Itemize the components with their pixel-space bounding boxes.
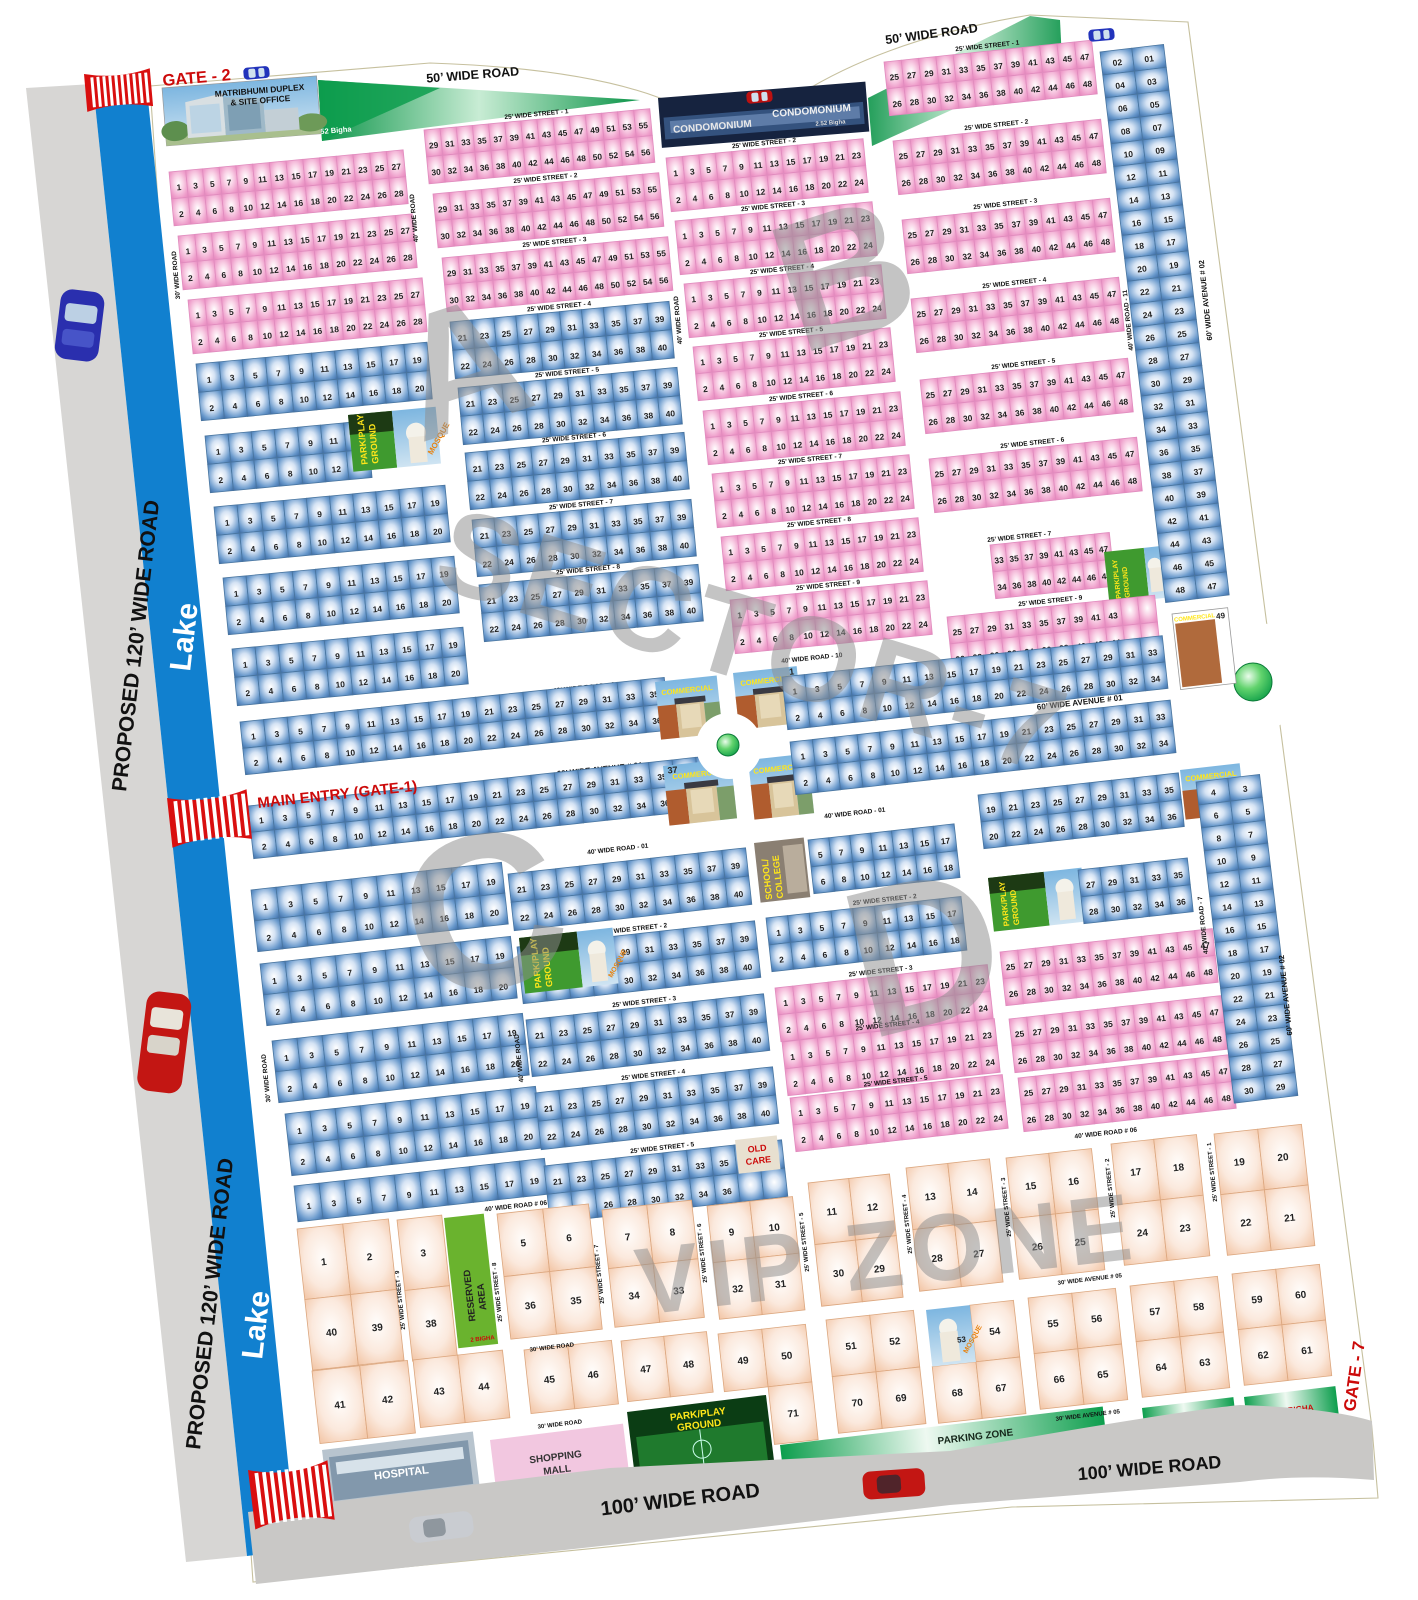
svg-text:42: 42 (1167, 516, 1178, 527)
svg-text:33: 33 (659, 868, 670, 879)
svg-text:24: 24 (1033, 826, 1044, 837)
svg-text:30: 30 (1244, 1085, 1255, 1096)
svg-text:52: 52 (889, 1336, 902, 1348)
svg-text:13: 13 (361, 504, 372, 515)
svg-text:29: 29 (942, 226, 953, 237)
svg-text:35: 35 (1009, 553, 1020, 564)
svg-text:32: 32 (578, 416, 589, 427)
svg-text:35: 35 (626, 449, 637, 460)
svg-text:36: 36 (979, 89, 990, 100)
svg-text:34: 34 (592, 348, 603, 359)
svg-text:30: 30 (556, 418, 567, 429)
svg-text:37: 37 (1121, 1017, 1132, 1028)
svg-text:41: 41 (525, 131, 536, 142)
svg-text:33: 33 (461, 137, 472, 148)
svg-text:28: 28 (565, 808, 576, 819)
svg-text:27: 27 (624, 1168, 635, 1179)
svg-text:45: 45 (543, 1374, 556, 1386)
svg-text:28: 28 (526, 355, 537, 366)
svg-text:40: 40 (1040, 323, 1051, 334)
svg-text:23: 23 (367, 228, 378, 239)
svg-text:11: 11 (329, 435, 339, 446)
svg-text:10: 10 (317, 537, 328, 548)
svg-text:37: 37 (655, 514, 666, 525)
svg-text:40: 40 (1058, 483, 1069, 494)
svg-text:32: 32 (674, 1191, 685, 1202)
svg-text:35: 35 (1164, 784, 1175, 795)
svg-text:46: 46 (1092, 317, 1103, 328)
svg-text:48: 48 (1175, 585, 1186, 596)
svg-text:48: 48 (576, 153, 587, 164)
svg-text:46: 46 (587, 1369, 600, 1381)
svg-text:31: 31 (1004, 621, 1015, 632)
svg-text:48: 48 (682, 1359, 695, 1371)
svg-text:31: 31 (950, 145, 961, 156)
svg-text:33: 33 (976, 222, 987, 233)
svg-text:37: 37 (1002, 140, 1013, 151)
svg-text:39: 39 (371, 1322, 384, 1334)
svg-text:14: 14 (1128, 195, 1139, 206)
svg-text:29: 29 (648, 1165, 659, 1176)
svg-text:28: 28 (1148, 355, 1159, 366)
svg-text:16: 16 (1224, 925, 1235, 936)
svg-text:34: 34 (997, 409, 1008, 420)
svg-text:41: 41 (1156, 1013, 1167, 1024)
svg-text:28: 28 (557, 725, 568, 736)
svg-text:28: 28 (927, 255, 938, 266)
svg-text:32: 32 (647, 972, 658, 983)
svg-text:12: 12 (340, 535, 351, 546)
svg-text:37: 37 (1020, 298, 1031, 309)
svg-text:28: 28 (403, 252, 414, 263)
svg-text:25: 25 (582, 1025, 593, 1036)
svg-text:30: 30 (1110, 904, 1121, 915)
svg-text:30: 30 (1062, 1110, 1073, 1121)
svg-text:42: 42 (1048, 242, 1059, 253)
svg-text:18: 18 (440, 737, 451, 748)
svg-text:28: 28 (591, 904, 602, 915)
svg-text:37: 37 (667, 764, 678, 775)
svg-text:29: 29 (1059, 1084, 1070, 1095)
svg-text:51: 51 (615, 187, 626, 198)
svg-text:21: 21 (341, 166, 352, 177)
svg-text:39: 39 (1039, 550, 1050, 561)
svg-text:38: 38 (737, 1110, 748, 1121)
svg-text:23: 23 (508, 704, 519, 715)
svg-text:20: 20 (1137, 263, 1148, 274)
svg-text:25: 25 (600, 1171, 611, 1182)
svg-text:39: 39 (1028, 217, 1039, 228)
svg-text:37: 37 (633, 316, 644, 327)
svg-text:26: 26 (1145, 332, 1156, 343)
svg-text:44: 44 (1066, 240, 1077, 251)
svg-text:32: 32 (953, 172, 964, 183)
svg-text:16: 16 (460, 1064, 471, 1075)
svg-text:31: 31 (575, 388, 586, 399)
svg-text:17: 17 (504, 1178, 515, 1189)
svg-text:22: 22 (1240, 1217, 1253, 1229)
svg-text:17: 17 (839, 408, 850, 419)
svg-text:11: 11 (1251, 875, 1261, 886)
svg-text:43: 43 (1072, 292, 1083, 303)
svg-text:56: 56 (659, 275, 670, 286)
svg-text:33: 33 (967, 143, 978, 154)
svg-text:38: 38 (496, 161, 507, 172)
svg-text:24: 24 (369, 255, 380, 266)
svg-text:41: 41 (1055, 294, 1066, 305)
svg-text:20: 20 (858, 433, 869, 444)
svg-text:13: 13 (445, 1109, 456, 1120)
svg-text:38: 38 (1027, 578, 1038, 589)
svg-text:32: 32 (962, 251, 973, 262)
svg-text:52: 52 (626, 278, 637, 289)
svg-text:11: 11 (407, 1039, 417, 1050)
svg-text:56: 56 (641, 147, 652, 158)
svg-text:45: 45 (1071, 132, 1082, 143)
svg-text:45: 45 (557, 128, 568, 139)
svg-text:42: 42 (382, 1394, 395, 1406)
svg-text:32: 32 (944, 93, 955, 104)
svg-text:45: 45 (1098, 371, 1109, 382)
svg-text:34: 34 (698, 1189, 709, 1200)
svg-text:27: 27 (588, 876, 599, 887)
svg-text:15: 15 (832, 472, 843, 483)
svg-text:33: 33 (1076, 954, 1087, 965)
svg-text:16: 16 (922, 1121, 933, 1132)
svg-text:37: 37 (734, 1082, 745, 1093)
svg-text:43: 43 (1045, 55, 1056, 66)
svg-text:36: 36 (524, 1300, 537, 1312)
svg-text:28: 28 (541, 486, 552, 497)
svg-text:50: 50 (610, 279, 621, 290)
svg-text:32: 32 (447, 165, 458, 176)
svg-text:36: 36 (1106, 1045, 1117, 1056)
svg-text:29: 29 (1107, 877, 1118, 888)
svg-text:25: 25 (898, 151, 909, 162)
svg-text:48: 48 (1118, 396, 1129, 407)
svg-text:40: 40 (512, 159, 523, 170)
svg-text:21: 21 (350, 230, 361, 241)
svg-text:25: 25 (516, 459, 527, 470)
svg-text:15: 15 (786, 156, 797, 167)
svg-text:10: 10 (345, 747, 356, 758)
svg-text:16: 16 (368, 387, 379, 398)
svg-text:33: 33 (1151, 872, 1162, 883)
svg-text:34: 34 (1006, 488, 1017, 499)
svg-text:23: 23 (576, 1173, 587, 1184)
svg-text:46: 46 (1185, 969, 1196, 980)
svg-text:27: 27 (563, 782, 574, 793)
svg-text:37: 37 (1112, 950, 1123, 961)
svg-text:51: 51 (845, 1341, 858, 1353)
svg-text:40: 40 (521, 223, 532, 234)
svg-text:24: 24 (510, 730, 521, 741)
svg-text:60: 60 (1295, 1289, 1308, 1301)
svg-text:20: 20 (451, 668, 462, 679)
svg-text:36: 36 (479, 162, 490, 173)
svg-text:30: 30 (1114, 743, 1125, 754)
svg-text:33: 33 (985, 301, 996, 312)
svg-text:46: 46 (1172, 562, 1183, 573)
svg-text:53: 53 (631, 185, 642, 196)
svg-text:48: 48 (585, 217, 596, 228)
svg-text:33: 33 (1142, 787, 1153, 798)
svg-text:29: 29 (1041, 958, 1052, 969)
svg-text:11: 11 (429, 1187, 439, 1198)
svg-text:49: 49 (1216, 611, 1226, 621)
svg-text:44: 44 (1048, 82, 1059, 93)
svg-text:47: 47 (574, 126, 585, 137)
svg-text:31: 31 (1067, 1023, 1078, 1034)
svg-text:44: 44 (478, 1381, 491, 1393)
svg-text:33: 33 (1085, 1021, 1096, 1032)
svg-text:27: 27 (1273, 1058, 1284, 1069)
svg-text:18: 18 (860, 561, 871, 572)
svg-text:12: 12 (349, 606, 360, 617)
svg-text:31: 31 (582, 453, 593, 464)
svg-text:28: 28 (1083, 681, 1094, 692)
svg-text:55: 55 (647, 184, 658, 195)
svg-text:26: 26 (910, 256, 921, 267)
svg-text:64: 64 (1155, 1362, 1168, 1374)
svg-text:48: 48 (1203, 967, 1214, 978)
svg-text:36: 36 (722, 1186, 733, 1197)
svg-text:36: 36 (1024, 486, 1035, 497)
svg-text:31: 31 (662, 1090, 673, 1101)
svg-text:27: 27 (555, 699, 566, 710)
svg-text:35: 35 (1021, 459, 1032, 470)
svg-text:15: 15 (310, 299, 321, 310)
svg-text:26: 26 (937, 495, 948, 506)
svg-text:30: 30 (431, 167, 442, 178)
svg-text:34: 34 (988, 328, 999, 339)
svg-text:29: 29 (586, 779, 597, 790)
svg-text:15: 15 (470, 1106, 481, 1117)
svg-text:10: 10 (398, 1145, 409, 1156)
svg-text:46: 46 (1110, 477, 1121, 488)
svg-text:20: 20 (463, 735, 474, 746)
svg-text:35: 35 (710, 1085, 721, 1096)
svg-text:29: 29 (1050, 1025, 1061, 1036)
svg-text:20: 20 (867, 496, 878, 507)
svg-text:32: 32 (971, 330, 982, 341)
svg-text:20: 20 (327, 194, 338, 205)
svg-text:39: 39 (670, 445, 681, 456)
svg-text:21: 21 (835, 152, 846, 163)
svg-text:09: 09 (1155, 145, 1166, 156)
svg-text:33: 33 (633, 774, 644, 785)
svg-text:39: 39 (1019, 138, 1030, 149)
svg-text:12: 12 (887, 1124, 898, 1135)
svg-text:35: 35 (633, 516, 644, 527)
svg-text:22: 22 (1011, 829, 1022, 840)
svg-text:40: 40 (1042, 577, 1053, 588)
svg-text:12: 12 (389, 918, 400, 929)
svg-text:40: 40 (1150, 1101, 1161, 1112)
svg-text:44: 44 (1093, 479, 1104, 490)
svg-text:19: 19 (1168, 260, 1179, 271)
svg-text:24: 24 (985, 1057, 996, 1068)
svg-text:25: 25 (531, 701, 542, 712)
svg-text:42: 42 (528, 157, 539, 168)
svg-text:16: 16 (302, 262, 313, 273)
svg-text:39: 39 (1055, 456, 1066, 467)
svg-text:31: 31 (610, 776, 621, 787)
svg-text:28: 28 (1035, 1053, 1046, 1064)
svg-text:35: 35 (1094, 952, 1105, 963)
svg-text:41: 41 (1199, 512, 1210, 523)
svg-text:13: 13 (390, 716, 401, 727)
svg-text:39: 39 (739, 933, 750, 944)
svg-text:33: 33 (994, 555, 1005, 566)
svg-text:18: 18 (310, 196, 321, 207)
svg-text:23: 23 (1174, 305, 1185, 316)
svg-text:38: 38 (1133, 1103, 1144, 1114)
svg-text:43: 43 (1165, 944, 1176, 955)
svg-text:30: 30 (1106, 678, 1117, 689)
svg-text:52: 52 (608, 150, 619, 161)
svg-text:15: 15 (919, 1094, 930, 1105)
svg-text:36: 36 (1015, 407, 1026, 418)
svg-text:33: 33 (668, 941, 679, 952)
svg-text:38: 38 (635, 344, 646, 355)
svg-text:10: 10 (243, 202, 254, 213)
svg-text:41: 41 (543, 259, 554, 270)
svg-text:19: 19 (855, 406, 866, 417)
svg-text:53: 53 (957, 1335, 967, 1345)
svg-text:38: 38 (1005, 166, 1016, 177)
svg-text:10: 10 (1216, 856, 1227, 867)
svg-text:26: 26 (377, 190, 388, 201)
svg-text:28: 28 (954, 494, 965, 505)
svg-text:34: 34 (636, 800, 647, 811)
svg-text:50: 50 (601, 215, 612, 226)
svg-text:33: 33 (1094, 1080, 1105, 1091)
svg-text:12: 12 (1126, 172, 1137, 183)
svg-text:14: 14 (277, 199, 288, 210)
svg-text:30: 30 (954, 332, 965, 343)
svg-text:16: 16 (312, 326, 323, 337)
svg-text:43: 43 (1069, 547, 1080, 558)
svg-text:17: 17 (1259, 944, 1270, 955)
svg-text:36: 36 (613, 346, 624, 357)
svg-text:22: 22 (487, 732, 498, 743)
svg-text:22: 22 (883, 494, 894, 505)
svg-text:18: 18 (498, 1134, 509, 1145)
svg-text:25: 25 (889, 72, 900, 83)
svg-text:23: 23 (1030, 799, 1041, 810)
svg-text:45: 45 (1080, 211, 1091, 222)
svg-text:40: 40 (751, 1035, 762, 1046)
svg-text:33: 33 (604, 451, 615, 462)
svg-text:29: 29 (960, 386, 971, 397)
svg-text:35: 35 (1103, 1019, 1114, 1030)
svg-text:46: 46 (1203, 1095, 1214, 1106)
svg-text:47: 47 (1089, 131, 1100, 142)
svg-text:30: 30 (945, 253, 956, 264)
svg-text:39: 39 (730, 860, 741, 871)
svg-text:27: 27 (523, 326, 534, 337)
svg-text:19: 19 (955, 1090, 966, 1101)
svg-text:13: 13 (379, 646, 390, 657)
svg-text:27: 27 (615, 1095, 626, 1106)
svg-text:35: 35 (477, 135, 488, 146)
svg-text:41: 41 (1165, 1072, 1176, 1083)
svg-text:29: 29 (1097, 792, 1108, 803)
svg-text:28: 28 (918, 176, 929, 187)
svg-text:30: 30 (624, 975, 635, 986)
svg-text:32: 32 (570, 350, 581, 361)
svg-text:27: 27 (1032, 1026, 1043, 1037)
svg-text:13: 13 (454, 1184, 465, 1195)
svg-text:11: 11 (386, 888, 396, 899)
svg-text:24: 24 (909, 556, 920, 567)
svg-text:33: 33 (958, 64, 969, 75)
svg-text:22: 22 (363, 321, 374, 332)
svg-text:43: 43 (541, 129, 552, 140)
svg-text:63: 63 (1199, 1357, 1212, 1369)
svg-text:36: 36 (997, 247, 1008, 258)
svg-text:39: 39 (663, 380, 674, 391)
svg-text:26: 26 (1026, 1114, 1037, 1125)
svg-text:11: 11 (267, 238, 277, 249)
svg-text:27: 27 (391, 161, 402, 172)
svg-text:27: 27 (924, 228, 935, 239)
svg-text:10: 10 (776, 441, 787, 452)
svg-text:35: 35 (1190, 443, 1201, 454)
svg-text:17: 17 (937, 1092, 948, 1103)
svg-text:13: 13 (815, 474, 826, 485)
svg-text:30: 30 (548, 352, 559, 363)
svg-text:40: 40 (1031, 244, 1042, 255)
svg-text:25: 25 (1177, 328, 1188, 339)
svg-text:34: 34 (1097, 1106, 1108, 1117)
svg-text:28: 28 (627, 1196, 638, 1207)
svg-text:38: 38 (1023, 324, 1034, 335)
svg-text:31: 31 (1129, 874, 1140, 885)
svg-text:12: 12 (331, 464, 342, 475)
svg-text:10: 10 (757, 314, 768, 325)
svg-text:37: 37 (1029, 379, 1040, 390)
svg-text:33: 33 (695, 1160, 706, 1171)
svg-text:35: 35 (719, 1158, 730, 1169)
svg-text:34: 34 (600, 414, 611, 425)
svg-text:15: 15 (823, 409, 834, 420)
svg-text:12: 12 (773, 312, 784, 323)
svg-text:51: 51 (606, 123, 617, 134)
svg-text:35: 35 (985, 141, 996, 152)
svg-text:16: 16 (1131, 218, 1142, 229)
svg-text:44: 44 (1071, 574, 1082, 585)
svg-text:36: 36 (713, 1113, 724, 1124)
svg-text:31: 31 (1119, 789, 1130, 800)
svg-text:38: 38 (650, 475, 661, 486)
svg-text:27: 27 (1089, 719, 1100, 730)
svg-text:13: 13 (293, 300, 304, 311)
svg-text:25: 25 (925, 390, 936, 401)
svg-text:17: 17 (437, 711, 448, 722)
svg-text:26: 26 (901, 177, 912, 188)
svg-text:10: 10 (890, 767, 901, 778)
svg-text:18: 18 (1172, 1162, 1185, 1174)
svg-text:46: 46 (578, 282, 589, 293)
svg-text:OLD: OLD (747, 1143, 767, 1155)
svg-text:19: 19 (448, 640, 459, 651)
svg-text:33: 33 (470, 201, 481, 212)
svg-text:27: 27 (606, 1022, 617, 1033)
svg-text:45: 45 (1089, 290, 1100, 301)
svg-text:33: 33 (1021, 619, 1032, 630)
